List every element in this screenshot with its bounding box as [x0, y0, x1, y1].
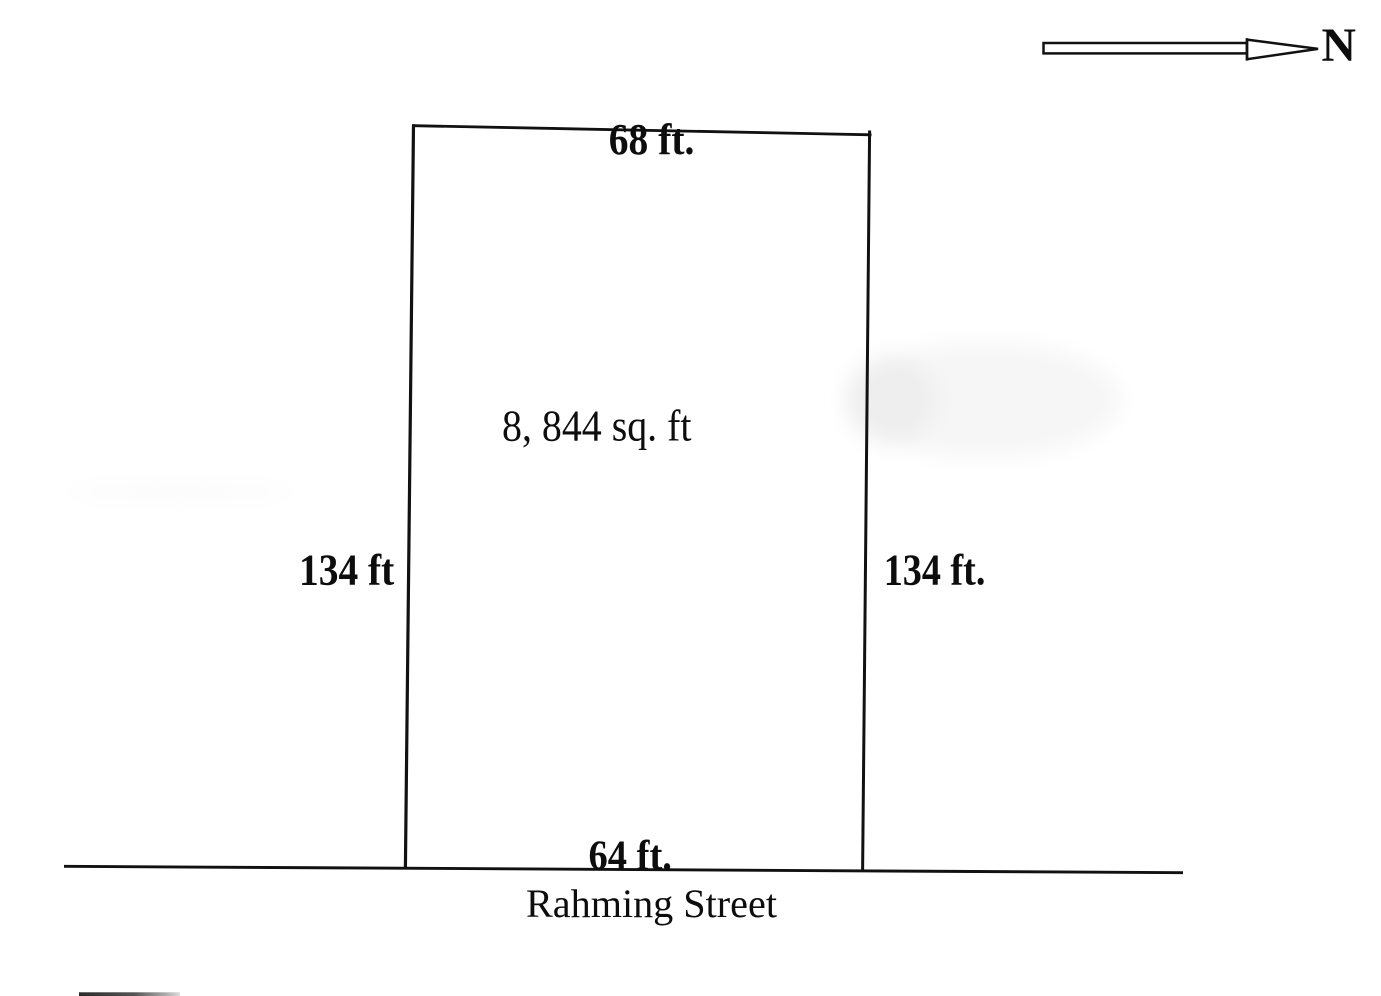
svg-text:N: N	[1322, 19, 1357, 72]
svg-text:8, 844 sq. ft: 8, 844 sq. ft	[502, 402, 692, 451]
svg-text:68 ft.: 68 ft.	[609, 115, 695, 164]
svg-text:134 ft: 134 ft	[299, 545, 395, 594]
svg-text:64 ft.: 64 ft.	[589, 834, 672, 880]
svg-text:Rahming Street: Rahming Street	[526, 881, 777, 926]
svg-text:134 ft.: 134 ft.	[884, 546, 986, 595]
